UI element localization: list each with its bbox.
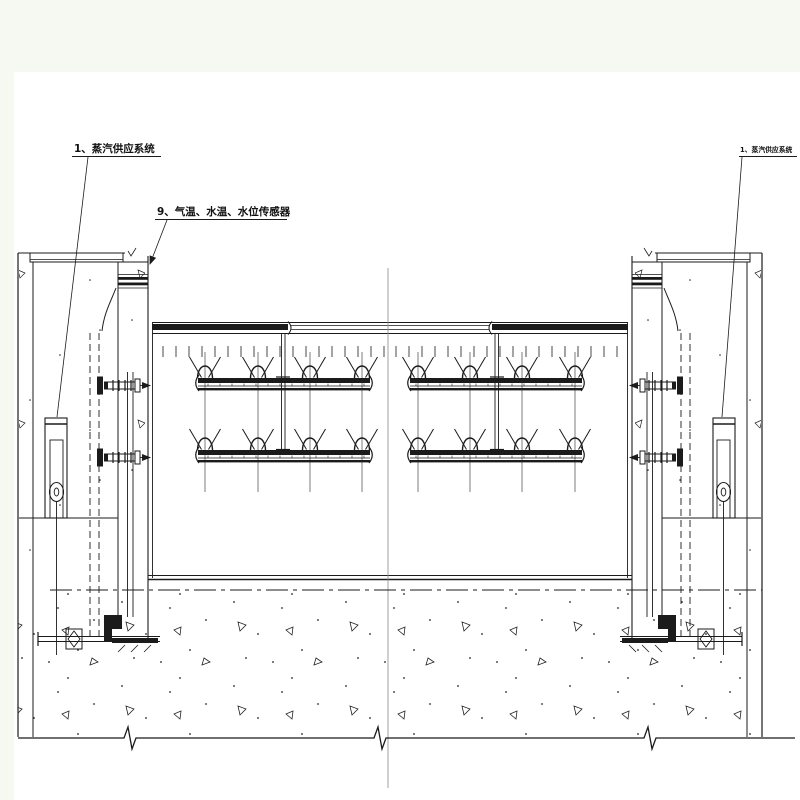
leader-sensors (150, 220, 167, 264)
label-steam-supply-left: 1、蒸汽供应系统 (74, 142, 155, 155)
label-sensors: 9、气温、水温、水位传感器 (157, 205, 291, 218)
label-steam-supply-right: 1、蒸汽供应系统 (740, 145, 793, 154)
gate-elevation-drawing: 1、蒸汽供应系统 9、气温、水温、水位传感器 1、蒸汽供应系统 (0, 0, 800, 800)
concrete-ground (18, 593, 762, 737)
